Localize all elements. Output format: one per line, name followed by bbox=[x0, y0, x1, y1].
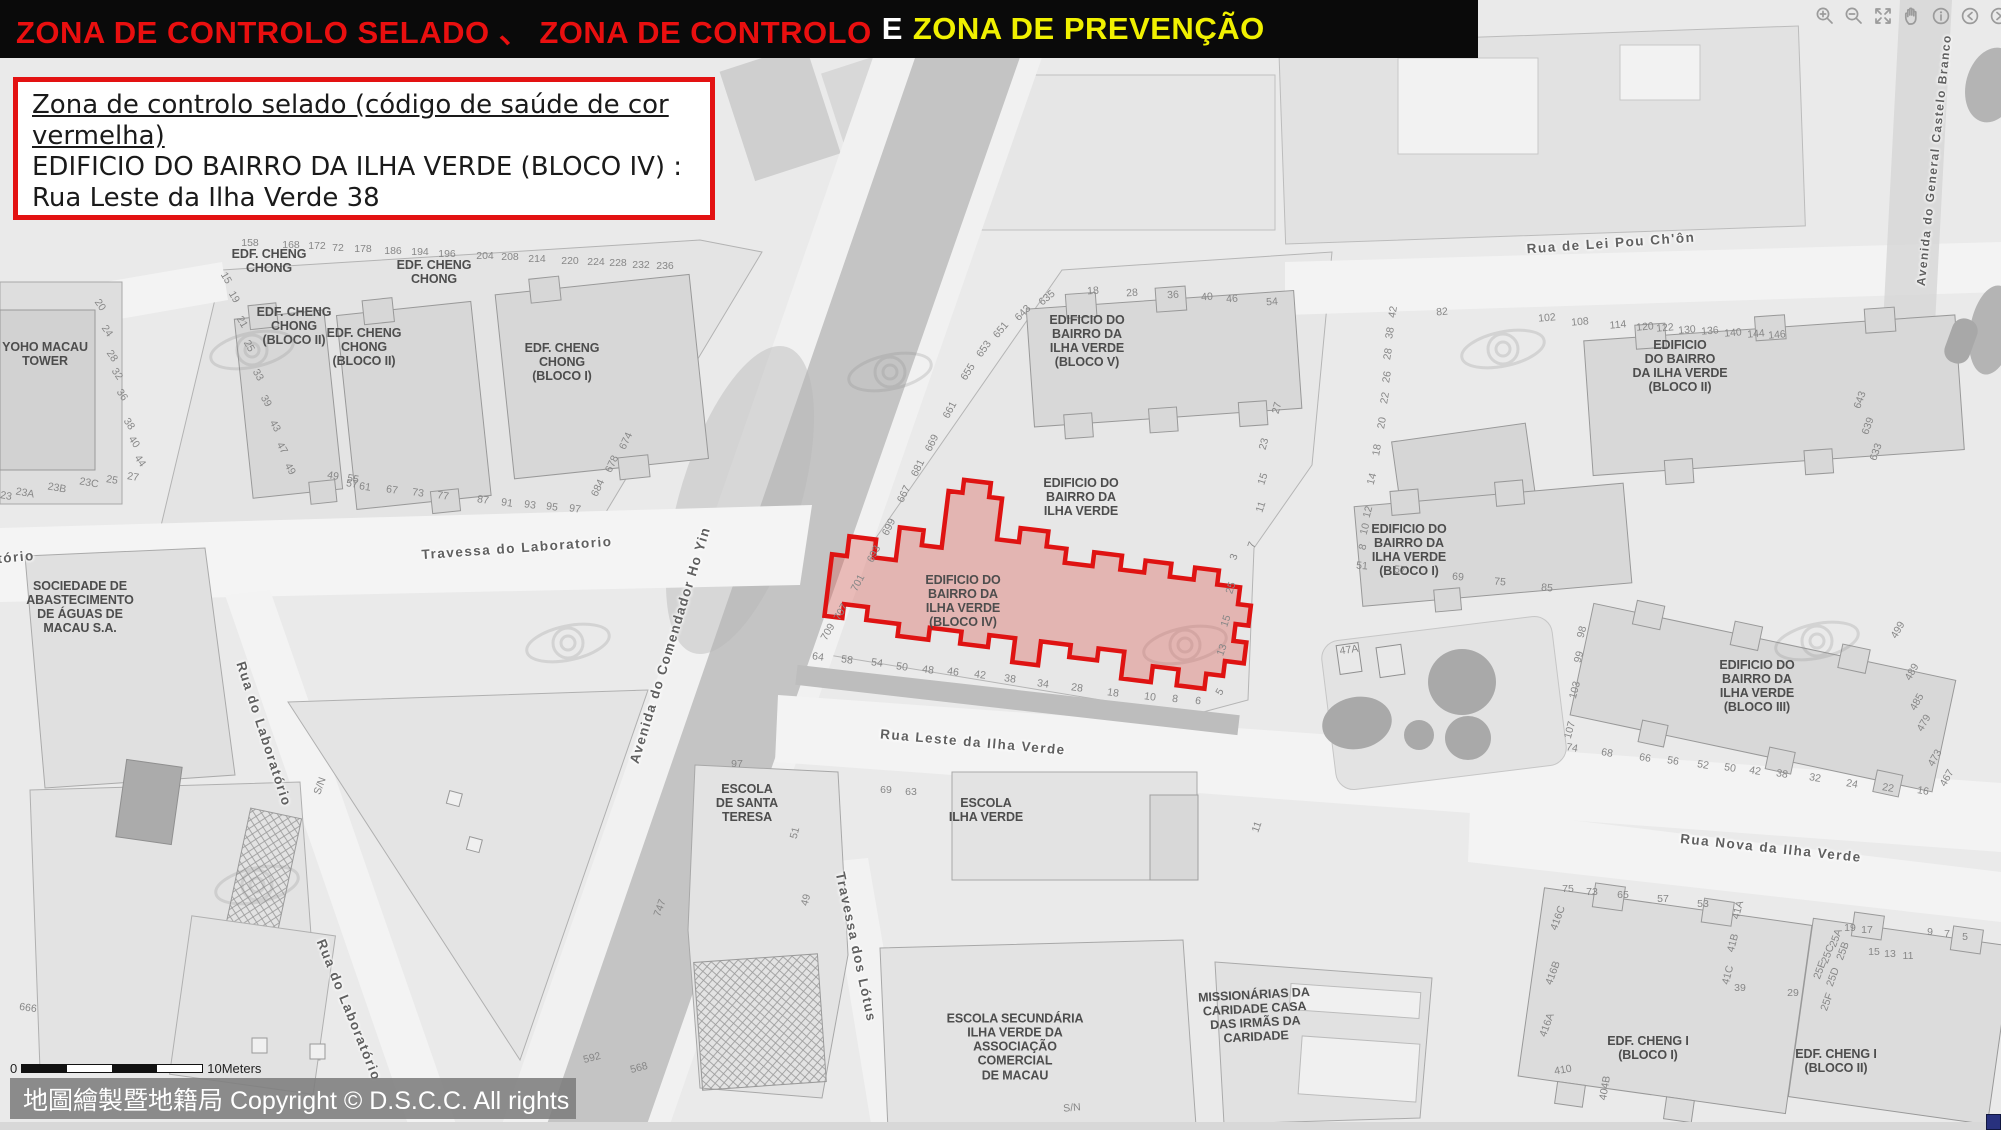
lot-number: 57 bbox=[1657, 893, 1669, 905]
lot-number: 77 bbox=[436, 489, 449, 503]
attribution-bar: 地圖繪製暨地籍局 Copyright © D.S.C.C. All rights… bbox=[10, 1078, 576, 1119]
building-label: EDF. CHENG I (BLOCO II) bbox=[1795, 1047, 1876, 1075]
lot-number: 7 bbox=[1944, 928, 1950, 940]
lot-number: 38 bbox=[1383, 326, 1397, 340]
lot-number: 18 bbox=[1370, 443, 1384, 457]
building-label: EDIFICIO DO BAIRRO DA ILHA VERDE bbox=[1043, 476, 1118, 518]
lot-number: 48 bbox=[921, 663, 934, 677]
lot-number: S/N bbox=[1063, 1101, 1081, 1114]
lot-number: 51 bbox=[1356, 560, 1369, 573]
bottom-strip bbox=[0, 1122, 2001, 1130]
lot-number: 19 bbox=[1844, 922, 1856, 934]
building-label: ESCOLA DE SANTA TERESA bbox=[716, 782, 778, 824]
lot-number: 20 bbox=[1375, 416, 1389, 430]
lot-number: 158 bbox=[241, 237, 259, 249]
tree-blob bbox=[1445, 716, 1491, 760]
lot-number: 178 bbox=[354, 243, 372, 255]
building-label: EDF. CHENG CHONG (BLOCO I) bbox=[525, 341, 600, 383]
lot-number: 232 bbox=[632, 259, 650, 271]
courtyard bbox=[1398, 58, 1538, 154]
pan-hand-icon[interactable] bbox=[1901, 5, 1923, 27]
tree-blob bbox=[1404, 720, 1434, 750]
lot-number: 38 bbox=[1003, 672, 1016, 686]
lot-number: 120 bbox=[1636, 320, 1655, 333]
lot-number: 208 bbox=[501, 251, 519, 263]
corner-widget[interactable] bbox=[1986, 1114, 2001, 1130]
building-label: EDIFICIO DO BAIRRO DA ILHA VERDE (BLOCO … bbox=[1632, 338, 1727, 395]
building-label: ESCOLA SECUNDÁRIA ILHA VERDE DA ASSOCIAÇ… bbox=[947, 1012, 1084, 1083]
lot-number: 68 bbox=[1600, 746, 1614, 760]
lot-number: 13 bbox=[1884, 948, 1896, 960]
lot-number: 63 bbox=[905, 786, 917, 798]
lot-number: 87 bbox=[476, 493, 489, 507]
lot-number: 18 bbox=[1106, 686, 1119, 700]
lot-number: 22 bbox=[1378, 391, 1392, 405]
lot-number: 46 bbox=[946, 665, 959, 679]
scale-distance-label: 10Meters bbox=[207, 1061, 261, 1076]
lot-number: 54 bbox=[1266, 296, 1278, 309]
lot-number: 102 bbox=[1538, 311, 1557, 324]
lot-number: 11 bbox=[1903, 950, 1914, 962]
lot-number: 144 bbox=[1747, 327, 1766, 340]
street-furniture bbox=[310, 1044, 325, 1059]
legend-address: Rua Leste da Ilha Verde 38 bbox=[32, 183, 380, 213]
tree-blob bbox=[1428, 649, 1496, 715]
lot-number: 74 bbox=[1565, 741, 1579, 755]
lot-number: 66 bbox=[1638, 751, 1652, 765]
scale-zero-label: 0 bbox=[10, 1061, 17, 1076]
title-conjunction: E bbox=[872, 11, 913, 47]
lot-number: 93 bbox=[523, 498, 536, 512]
building-label: EDIFICIO DO BAIRRO DA ILHA VERDE (BLOCO … bbox=[1049, 313, 1124, 370]
lot-number: 56 bbox=[1666, 754, 1680, 768]
street-furniture bbox=[466, 837, 482, 853]
building-label: YOHO MACAU TOWER bbox=[2, 340, 88, 368]
building-label: EDF. CHENG CHONG bbox=[232, 247, 307, 275]
lot-number: 22 bbox=[1881, 781, 1895, 795]
zoom-out-icon[interactable] bbox=[1843, 5, 1865, 27]
lot-number: 15 bbox=[1868, 946, 1880, 958]
edf-cheng-i-bloco-ii-building bbox=[1788, 906, 2001, 1124]
lot-number: 9 bbox=[1927, 926, 1933, 938]
building-label: EDF. CHENG CHONG (BLOCO II) bbox=[327, 326, 402, 368]
lot-number: 91 bbox=[500, 496, 513, 510]
lot-number: 228 bbox=[609, 257, 627, 269]
lot-number: 40 bbox=[1201, 291, 1213, 304]
lot-number: 29 bbox=[1787, 987, 1799, 999]
lot-number: 97 bbox=[731, 758, 743, 770]
lot-number: 214 bbox=[528, 253, 546, 265]
lot-number: 34 bbox=[1036, 677, 1049, 691]
map-viewer-screen: EDF. CHENG CHONGEDF. CHENG CHONGEDF. CHE… bbox=[0, 0, 2001, 1130]
lot-number: 23 bbox=[0, 489, 13, 503]
hatched-area bbox=[694, 954, 827, 1090]
lot-number: 75 bbox=[1494, 576, 1507, 589]
lot-number: 85 bbox=[1541, 582, 1554, 595]
lot-number: 38 bbox=[1775, 767, 1789, 781]
next-view-icon[interactable] bbox=[1988, 5, 2001, 27]
building-label: EDIFICIO DO BAIRRO DA ILHA VERDE (BLOCO … bbox=[1371, 522, 1446, 579]
lot-number: 236 bbox=[656, 260, 674, 272]
building-label: SOCIEDADE DE ABASTECIMENTO DE ÁGUAS DE M… bbox=[26, 579, 134, 636]
lot-number: 24 bbox=[1845, 777, 1859, 791]
lot-number: 136 bbox=[1701, 324, 1720, 337]
lot-number: 95 bbox=[545, 500, 558, 514]
building-label: MISSIONÁRIAS DA CARIDADE CASA DAS IRMÃS … bbox=[1198, 985, 1313, 1047]
copyright-text: 地圖繪製暨地籍局 Copyright © D.S.C.C. All rights… bbox=[23, 1081, 576, 1117]
lot-number: 194 bbox=[411, 246, 429, 258]
lot-number: 16 bbox=[1916, 784, 1930, 798]
lot-number: 25 bbox=[105, 473, 119, 487]
title-prevention-zone: ZONA DE PREVENÇÃO bbox=[913, 11, 1265, 47]
lot-number: 69 bbox=[880, 784, 892, 796]
legend-box: Zona de controlo selado (código de saúde… bbox=[13, 77, 715, 220]
lot-number: 168 bbox=[282, 239, 300, 251]
lot-number: 69 bbox=[1452, 571, 1465, 584]
lot-number: 28 bbox=[1381, 347, 1395, 361]
lot-number: 666 bbox=[18, 1001, 37, 1015]
lot-number: 5 bbox=[1962, 931, 1968, 943]
lot-number: 196 bbox=[438, 248, 456, 260]
building-label: ESCOLA ILHA VERDE bbox=[949, 796, 1023, 824]
lot-number: 47A bbox=[1339, 643, 1359, 657]
scale-bar: 0 10Meters bbox=[10, 1061, 261, 1076]
courtyard bbox=[1298, 1036, 1420, 1102]
lot-number: 130 bbox=[1678, 323, 1697, 336]
lot-number: 42 bbox=[1748, 764, 1762, 778]
lot-number: 73 bbox=[1586, 886, 1598, 898]
lot-number: 50 bbox=[1723, 761, 1737, 775]
lot-number: 10 bbox=[1143, 690, 1156, 704]
lot-number: 27 bbox=[126, 470, 140, 484]
lot-number: 146 bbox=[1768, 328, 1787, 341]
lot-number: 65 bbox=[1617, 889, 1629, 901]
lot-number: 50 bbox=[895, 660, 908, 674]
lot-number: 67 bbox=[385, 483, 398, 497]
yoho-macau-tower-building bbox=[0, 310, 95, 470]
lot-number: 61 bbox=[358, 480, 371, 494]
dark-building bbox=[116, 759, 182, 844]
lot-number: 42 bbox=[973, 668, 986, 682]
lot-number: 186 bbox=[384, 245, 402, 257]
lot-number: 97 bbox=[568, 502, 581, 516]
lot-number: 17 bbox=[1861, 924, 1873, 936]
title-sealed-zone: ZONA DE CONTROLO SELADO 、 ZONA DE CONTRO… bbox=[16, 7, 872, 52]
lot-number: 36 bbox=[1167, 289, 1179, 302]
escola-ilha-verde-building bbox=[1150, 795, 1198, 880]
lot-number: 58 bbox=[840, 653, 853, 667]
lot-number: 28 bbox=[1126, 287, 1138, 300]
plaza-47a bbox=[1318, 614, 1568, 791]
lot-number: 32 bbox=[1808, 771, 1822, 785]
info-icon[interactable] bbox=[1930, 5, 1952, 27]
scale-bar-segments bbox=[21, 1064, 203, 1073]
lot-number: 46 bbox=[1226, 293, 1238, 306]
courtyard bbox=[1620, 45, 1700, 100]
lot-number: 108 bbox=[1571, 315, 1590, 328]
building-label: EDIFICIO DO BAIRRO DA ILHA VERDE (BLOCO … bbox=[925, 573, 1000, 630]
lot-number: 52 bbox=[1696, 758, 1710, 772]
lot-number: 64 bbox=[811, 650, 824, 664]
lot-number: 75 bbox=[1562, 883, 1574, 895]
title-banner: ZONA DE CONTROLO SELADO 、 ZONA DE CONTRO… bbox=[0, 0, 1478, 58]
street-furniture bbox=[446, 791, 462, 807]
legend-building-name: EDIFICIO DO BAIRRO DA ILHA VERDE (BLOCO … bbox=[32, 152, 682, 182]
northeast-block bbox=[1279, 26, 1806, 244]
lot-number: 172 bbox=[308, 240, 326, 252]
building-label: EDIFICIO DO BAIRRO DA ILHA VERDE (BLOCO … bbox=[1719, 658, 1794, 715]
building-label: EDF. CHENG I (BLOCO I) bbox=[1607, 1034, 1688, 1062]
lot-number: 57 bbox=[1394, 564, 1407, 577]
lot-number: 140 bbox=[1724, 326, 1743, 339]
lot-number: 42 bbox=[1386, 305, 1400, 319]
street-furniture bbox=[252, 1038, 267, 1053]
fullscreen-icon[interactable] bbox=[1872, 5, 1894, 27]
lot-number: 26 bbox=[1380, 370, 1394, 384]
lot-number: 28 bbox=[1070, 681, 1083, 695]
lot-number: 82 bbox=[1436, 306, 1449, 319]
lot-number: 122 bbox=[1656, 321, 1675, 334]
lot-number: 54 bbox=[870, 656, 883, 670]
lot-number: 53 bbox=[1697, 898, 1709, 910]
lot-number: 114 bbox=[1609, 318, 1627, 331]
lot-number: 39 bbox=[1734, 982, 1746, 994]
lot-number: 73 bbox=[411, 486, 424, 500]
zoom-in-icon[interactable] bbox=[1814, 5, 1836, 27]
legend-zone-type: Zona de controlo selado (código de saúde… bbox=[32, 90, 669, 151]
lot-number: 220 bbox=[561, 255, 579, 267]
lot-number: 224 bbox=[587, 256, 605, 268]
building-label: EDF. CHENG CHONG (BLOCO II) bbox=[257, 305, 332, 347]
lot-number: 72 bbox=[332, 242, 344, 254]
building-label: EDF. CHENG CHONG bbox=[397, 258, 472, 286]
previous-view-icon[interactable] bbox=[1959, 5, 1981, 27]
lot-number: 204 bbox=[476, 250, 494, 262]
lot-number: 49 bbox=[326, 469, 340, 483]
lot-number: 18 bbox=[1087, 285, 1099, 298]
lot-number: 57 bbox=[345, 477, 358, 491]
map-toolbar bbox=[1814, 5, 2001, 27]
